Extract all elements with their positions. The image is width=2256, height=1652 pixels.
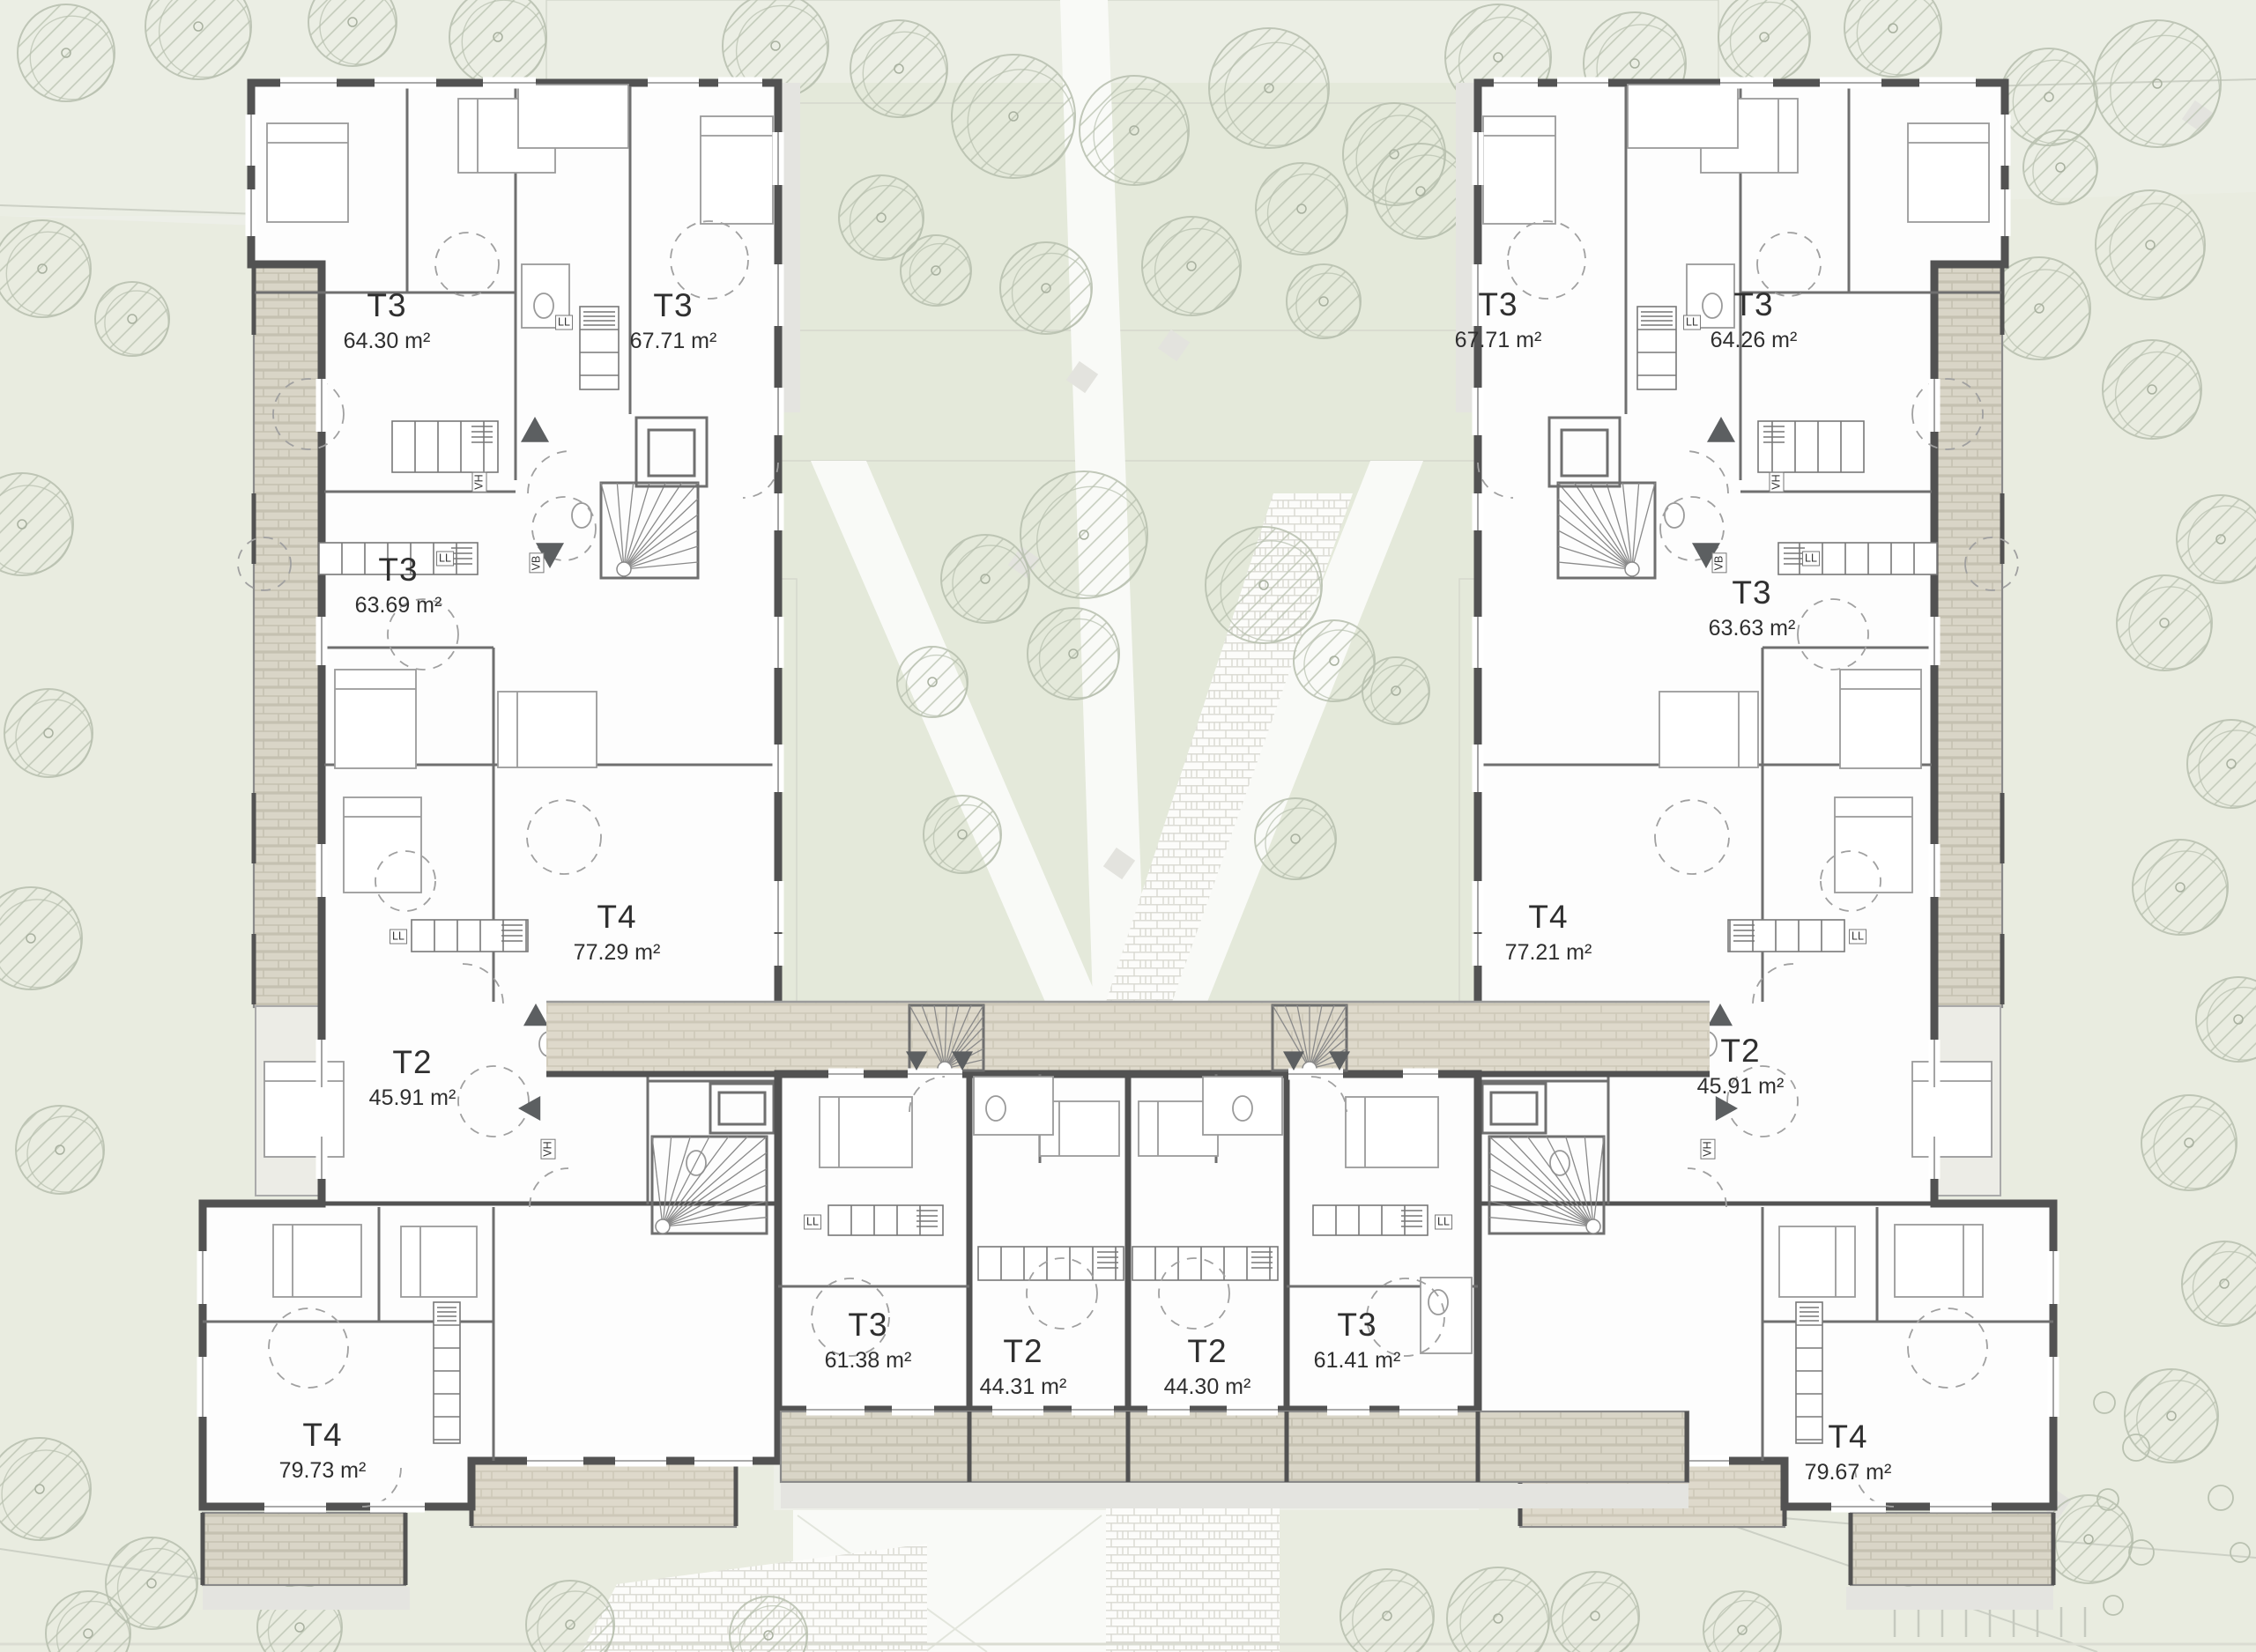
tree-icon bbox=[1020, 471, 1147, 598]
tree-icon bbox=[0, 220, 91, 317]
tree-canopy bbox=[2133, 840, 2228, 935]
counter bbox=[1313, 1205, 1428, 1235]
toilet-icon bbox=[1429, 1290, 1448, 1315]
tree-icon bbox=[2141, 1095, 2237, 1190]
window bbox=[773, 617, 784, 668]
window bbox=[316, 617, 328, 665]
kitchen-counter bbox=[828, 1205, 943, 1235]
bed bbox=[273, 1225, 361, 1297]
terrace-south-walk bbox=[471, 1463, 736, 1527]
window bbox=[1288, 1069, 1343, 1080]
tree-icon bbox=[1142, 217, 1241, 315]
left-wing bbox=[197, 78, 801, 1611]
tree-canopy bbox=[18, 4, 115, 101]
tree-canopy bbox=[2103, 340, 2201, 439]
toilet-icon bbox=[534, 293, 553, 318]
tree-icon bbox=[897, 647, 968, 717]
tree-icon bbox=[95, 282, 169, 356]
window bbox=[773, 493, 784, 530]
right-wing bbox=[1456, 78, 2059, 1611]
bed-frame bbox=[820, 1097, 912, 1167]
window bbox=[316, 1040, 328, 1087]
tree-canopy bbox=[2125, 1369, 2218, 1463]
tree-canopy bbox=[1362, 657, 1429, 724]
kitchen-counter bbox=[1132, 1247, 1278, 1280]
tree-canopy bbox=[952, 55, 1075, 178]
site-plan-drawing bbox=[0, 0, 2256, 1652]
window bbox=[892, 1404, 934, 1416]
tree-icon bbox=[1255, 798, 1336, 879]
bed-frame bbox=[267, 123, 348, 222]
tree-icon bbox=[1718, 0, 1810, 83]
bed bbox=[335, 670, 416, 768]
window bbox=[280, 78, 337, 89]
tree-icon bbox=[18, 4, 115, 101]
bar-sidewalk bbox=[781, 1484, 1688, 1508]
bed bbox=[701, 116, 773, 224]
window bbox=[316, 1137, 328, 1179]
window bbox=[264, 1501, 326, 1513]
tree-canopy bbox=[1028, 608, 1119, 700]
tree-icon bbox=[449, 0, 546, 85]
toilet-icon bbox=[986, 1096, 1006, 1121]
kitchen-counter bbox=[1313, 1205, 1428, 1235]
tree-icon bbox=[2133, 840, 2228, 935]
bed bbox=[267, 123, 348, 222]
tree-icon bbox=[2023, 130, 2097, 204]
tree-icon bbox=[1373, 144, 1468, 239]
tree-canopy bbox=[16, 1106, 104, 1194]
window bbox=[246, 189, 257, 236]
tree-icon bbox=[1362, 657, 1429, 724]
window bbox=[615, 1456, 666, 1467]
tree-canopy bbox=[2141, 1095, 2237, 1190]
counter bbox=[434, 1302, 460, 1443]
window bbox=[1147, 1404, 1190, 1416]
bed-frame bbox=[401, 1226, 477, 1297]
tree-icon bbox=[2000, 48, 2097, 145]
tree-icon bbox=[952, 55, 1075, 178]
counter bbox=[828, 1205, 943, 1235]
window bbox=[197, 1251, 209, 1304]
kitchen-counter bbox=[319, 543, 478, 574]
tree-canopy bbox=[4, 689, 93, 777]
kitchen-counter bbox=[412, 920, 528, 952]
tree-icon bbox=[0, 1438, 91, 1540]
tree-icon bbox=[2094, 20, 2221, 147]
window bbox=[527, 1456, 583, 1467]
bed bbox=[820, 1097, 912, 1167]
window bbox=[375, 78, 436, 89]
bed bbox=[344, 797, 421, 893]
tree-canopy bbox=[1256, 163, 1347, 255]
cobble-path-south bbox=[1106, 1491, 1280, 1652]
window bbox=[648, 78, 699, 89]
kitchen-counter bbox=[392, 421, 498, 472]
bed-frame bbox=[335, 670, 416, 768]
tree-icon bbox=[1256, 163, 1347, 255]
tree-icon bbox=[850, 20, 947, 117]
tree-canopy bbox=[1142, 217, 1241, 315]
tree-icon bbox=[1000, 242, 1092, 334]
tree-canopy bbox=[1206, 527, 1322, 643]
tree-icon bbox=[941, 535, 1029, 623]
bed bbox=[264, 1062, 344, 1157]
window bbox=[1227, 1404, 1278, 1416]
window bbox=[773, 388, 784, 435]
window bbox=[828, 1069, 864, 1080]
bed-frame bbox=[273, 1225, 361, 1297]
stair-newel bbox=[617, 562, 631, 576]
tree-canopy bbox=[2044, 1495, 2133, 1583]
window bbox=[773, 934, 784, 966]
window bbox=[483, 78, 536, 89]
tree-canopy bbox=[897, 647, 968, 717]
tree-canopy bbox=[901, 235, 971, 306]
tree-canopy bbox=[95, 282, 169, 356]
tree-icon bbox=[1209, 28, 1329, 148]
window bbox=[773, 745, 784, 792]
tree-canopy bbox=[1209, 28, 1329, 148]
tree-canopy bbox=[1000, 242, 1092, 334]
window bbox=[694, 1456, 753, 1467]
window bbox=[316, 844, 328, 897]
tree-icon bbox=[2125, 1369, 2218, 1463]
bed bbox=[498, 692, 597, 767]
terrace-west-strip bbox=[254, 266, 320, 1007]
bathtub bbox=[518, 85, 628, 148]
tree-canopy bbox=[1373, 144, 1468, 239]
tree-icon bbox=[1080, 76, 1189, 185]
tree-canopy bbox=[941, 535, 1029, 623]
window bbox=[246, 115, 257, 166]
tree-icon bbox=[16, 1106, 104, 1194]
window bbox=[316, 379, 328, 432]
tree-icon bbox=[1340, 1569, 1434, 1652]
counter bbox=[392, 421, 498, 472]
stair-newel bbox=[656, 1219, 670, 1233]
window bbox=[1403, 1069, 1438, 1080]
tree-canopy bbox=[1255, 798, 1336, 879]
window bbox=[908, 1069, 962, 1080]
tree-icon bbox=[4, 689, 93, 777]
bed-frame bbox=[498, 692, 597, 767]
sidewalk-south bbox=[203, 1587, 410, 1610]
access-walkway bbox=[546, 1002, 1710, 1074]
tree-canopy bbox=[1020, 471, 1147, 598]
tree-icon bbox=[2117, 575, 2212, 670]
window bbox=[1327, 1404, 1369, 1416]
tree-icon bbox=[1028, 608, 1119, 700]
tree-canopy bbox=[2023, 130, 2097, 204]
bed bbox=[401, 1226, 477, 1297]
tree-canopy bbox=[1287, 264, 1361, 338]
tree-icon bbox=[2044, 1495, 2133, 1583]
toilet-icon bbox=[1233, 1096, 1252, 1121]
kitchen-counter bbox=[434, 1302, 460, 1443]
tree-icon bbox=[1287, 264, 1361, 338]
window bbox=[370, 1501, 425, 1513]
tree-icon bbox=[2103, 340, 2201, 439]
bed bbox=[1346, 1097, 1438, 1167]
window bbox=[773, 264, 784, 326]
kitchen-counter bbox=[978, 1247, 1124, 1280]
tree-canopy bbox=[2094, 20, 2221, 147]
window bbox=[773, 881, 784, 932]
bar-terrace bbox=[781, 1411, 1688, 1482]
window bbox=[1399, 1404, 1458, 1416]
tree-canopy bbox=[2096, 190, 2205, 300]
bed-frame bbox=[701, 116, 773, 224]
bed-frame bbox=[1346, 1097, 1438, 1167]
tree-canopy bbox=[2117, 575, 2212, 670]
counter bbox=[580, 307, 619, 389]
tree-icon bbox=[2182, 1241, 2256, 1326]
tree-canopy bbox=[850, 20, 947, 117]
bed-frame bbox=[344, 797, 421, 893]
window bbox=[773, 132, 784, 185]
tree-icon bbox=[924, 796, 1001, 873]
tree-icon bbox=[2096, 190, 2205, 300]
bed-frame bbox=[264, 1062, 344, 1157]
terrace-south bbox=[203, 1513, 405, 1585]
tree-icon bbox=[1551, 1572, 1639, 1652]
kitchen-counter bbox=[580, 307, 619, 389]
tree-icon bbox=[901, 235, 971, 306]
window bbox=[992, 1404, 1043, 1416]
window bbox=[718, 78, 762, 89]
window bbox=[806, 1404, 865, 1416]
window bbox=[197, 1357, 209, 1417]
bathroom bbox=[1421, 1278, 1472, 1353]
window bbox=[1072, 1404, 1114, 1416]
tree-canopy bbox=[2000, 48, 2097, 145]
tree-icon bbox=[1206, 527, 1322, 643]
toilet-icon bbox=[572, 503, 591, 528]
tree-canopy bbox=[924, 796, 1001, 873]
tree-icon bbox=[2177, 495, 2256, 583]
tree-canopy bbox=[1080, 76, 1189, 185]
